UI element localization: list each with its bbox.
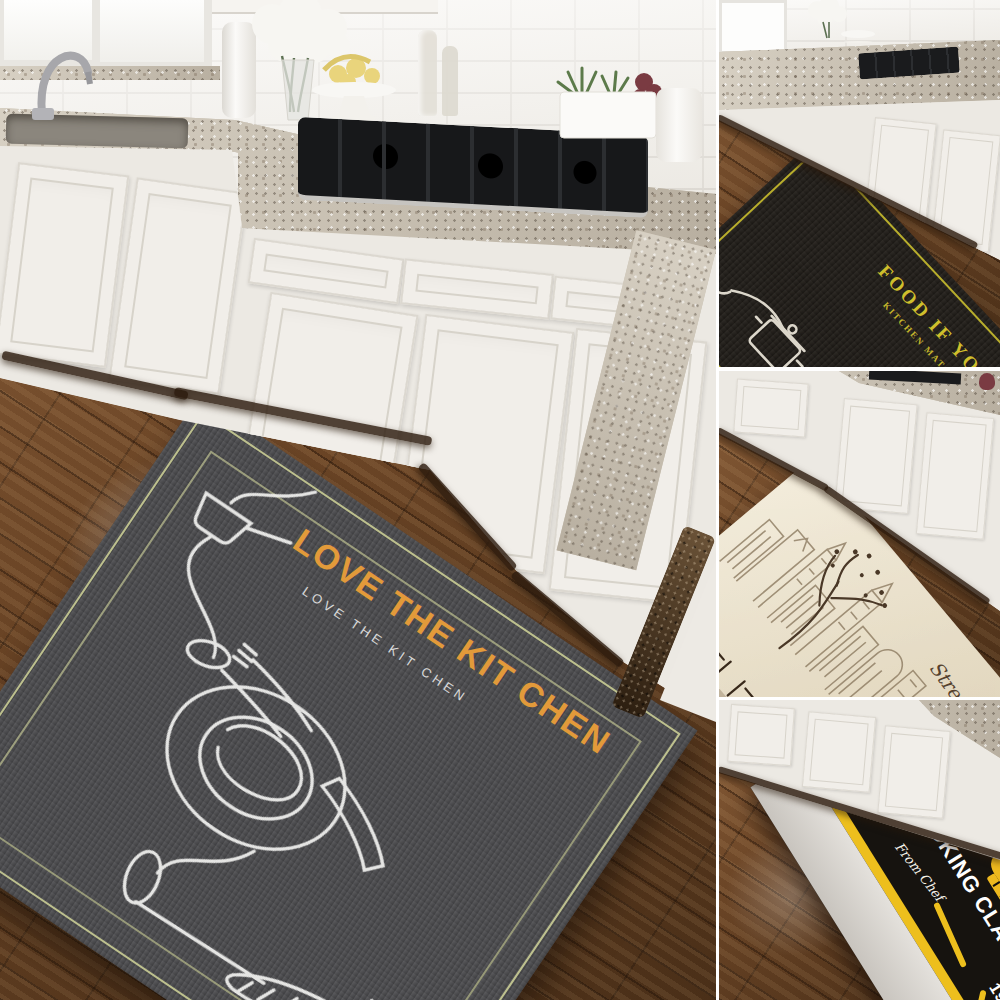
cabinet-door <box>733 379 809 438</box>
faucet-icon <box>26 16 106 120</box>
cabinet-door <box>108 177 247 395</box>
cabinet-door <box>727 704 795 766</box>
oil-bottle <box>418 30 437 116</box>
cabinet-drawer <box>400 258 554 319</box>
whisk-icon <box>805 363 851 367</box>
oil-bottle <box>442 46 458 116</box>
thumb-photo-food-if-you: FOOD IF YOU KITCHEN MAT <box>719 0 1000 367</box>
knife-icon <box>296 773 409 878</box>
product-collage: LOVE THE KIT CHEN LOVE THE KIT CHEN <box>0 0 1000 1000</box>
cabinet-door <box>802 711 876 793</box>
cabinet-door <box>0 162 129 368</box>
thumb-photo-cooking-classes: EST. COOKING CLASSES From Chef 1997 <box>719 700 1000 1000</box>
utensil-handle-rod <box>933 902 967 968</box>
main-photo: LOVE THE KIT CHEN LOVE THE KIT CHEN <box>0 0 716 1000</box>
carrot-icon <box>224 948 361 1000</box>
cake-stand-with-fruit <box>304 52 404 124</box>
ladle-icon <box>719 263 733 300</box>
cake-stand <box>841 30 875 38</box>
window-pane <box>100 0 204 62</box>
white-canister <box>656 88 702 162</box>
swirl-line <box>231 456 315 538</box>
thumb-photo-street-cafe: Street Cafe <box>719 371 1000 697</box>
plate-icon <box>136 654 376 883</box>
cabinet-door <box>877 725 950 818</box>
succulent-planter <box>548 48 668 148</box>
spoon-icon <box>184 636 233 673</box>
cabinet-door <box>834 398 917 514</box>
fork-icon <box>233 643 257 667</box>
window <box>719 0 787 54</box>
saucepan-icon <box>188 493 251 550</box>
carrot-leaves <box>347 997 396 1000</box>
red-plant <box>979 373 995 390</box>
cabinet-door <box>916 412 994 539</box>
